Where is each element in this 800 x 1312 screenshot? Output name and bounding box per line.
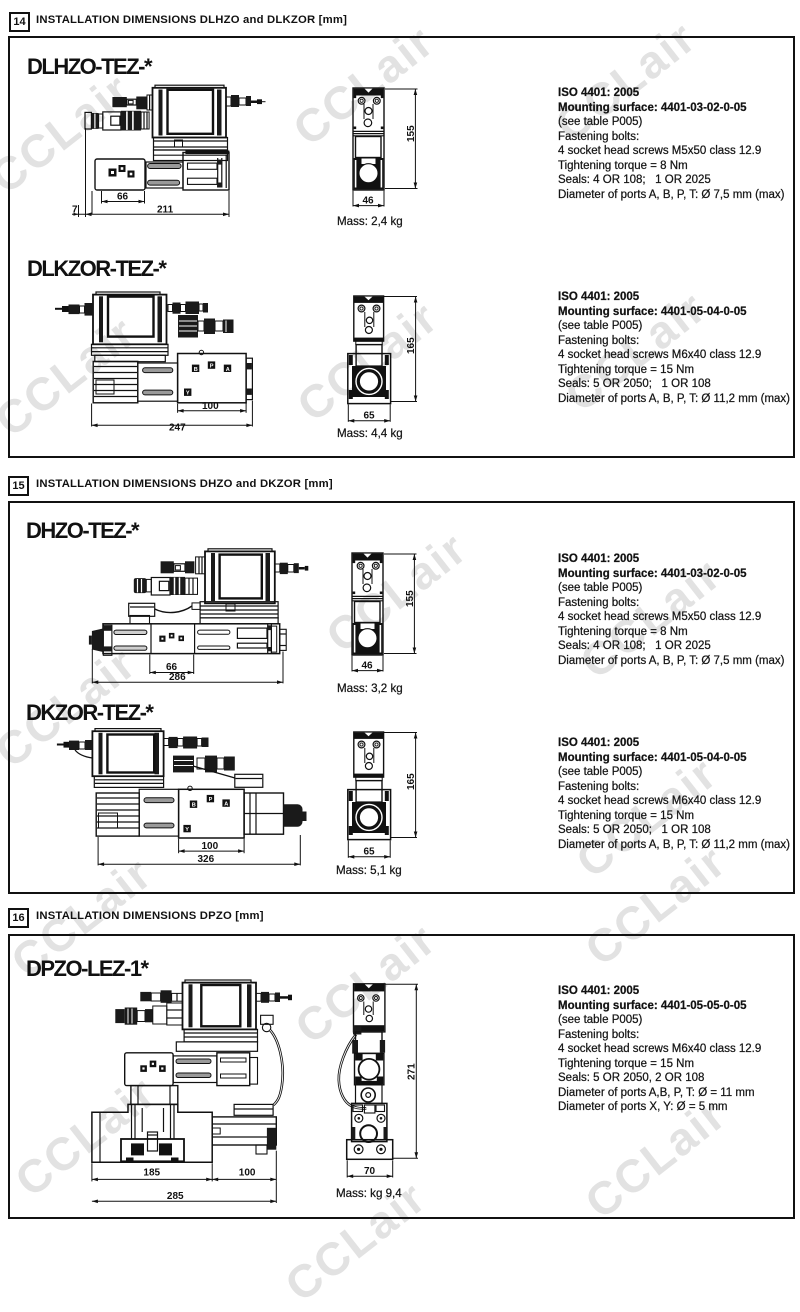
svg-text:155: 155: [406, 125, 417, 142]
svg-text:100: 100: [239, 1168, 256, 1179]
svg-text:100: 100: [202, 841, 219, 852]
svg-text:65: 65: [364, 411, 376, 422]
svg-text:46: 46: [363, 196, 375, 207]
svg-text:P: P: [209, 797, 213, 803]
svg-text:247: 247: [169, 423, 186, 434]
svg-text:B: B: [194, 367, 198, 373]
svg-text:A: A: [226, 367, 230, 373]
svg-text:211: 211: [157, 205, 174, 216]
svg-text:66: 66: [117, 192, 129, 203]
svg-text:65: 65: [364, 847, 376, 858]
svg-text:P: P: [210, 364, 214, 370]
svg-text:46: 46: [362, 661, 374, 672]
svg-text:286: 286: [169, 672, 186, 683]
svg-text:Y: Y: [185, 827, 189, 833]
svg-text:165: 165: [406, 337, 417, 354]
svg-text:7: 7: [72, 205, 78, 216]
svg-text:185: 185: [143, 1168, 160, 1179]
svg-text:155: 155: [405, 590, 416, 607]
svg-text:271: 271: [407, 1063, 418, 1080]
svg-text:100: 100: [202, 401, 219, 412]
svg-text:B: B: [192, 803, 196, 809]
svg-text:165: 165: [406, 773, 417, 790]
svg-text:Y: Y: [186, 391, 190, 397]
svg-text:285: 285: [167, 1191, 184, 1202]
svg-text:70: 70: [364, 1166, 376, 1177]
svg-text:A: A: [224, 802, 228, 808]
svg-text:326: 326: [198, 854, 215, 865]
